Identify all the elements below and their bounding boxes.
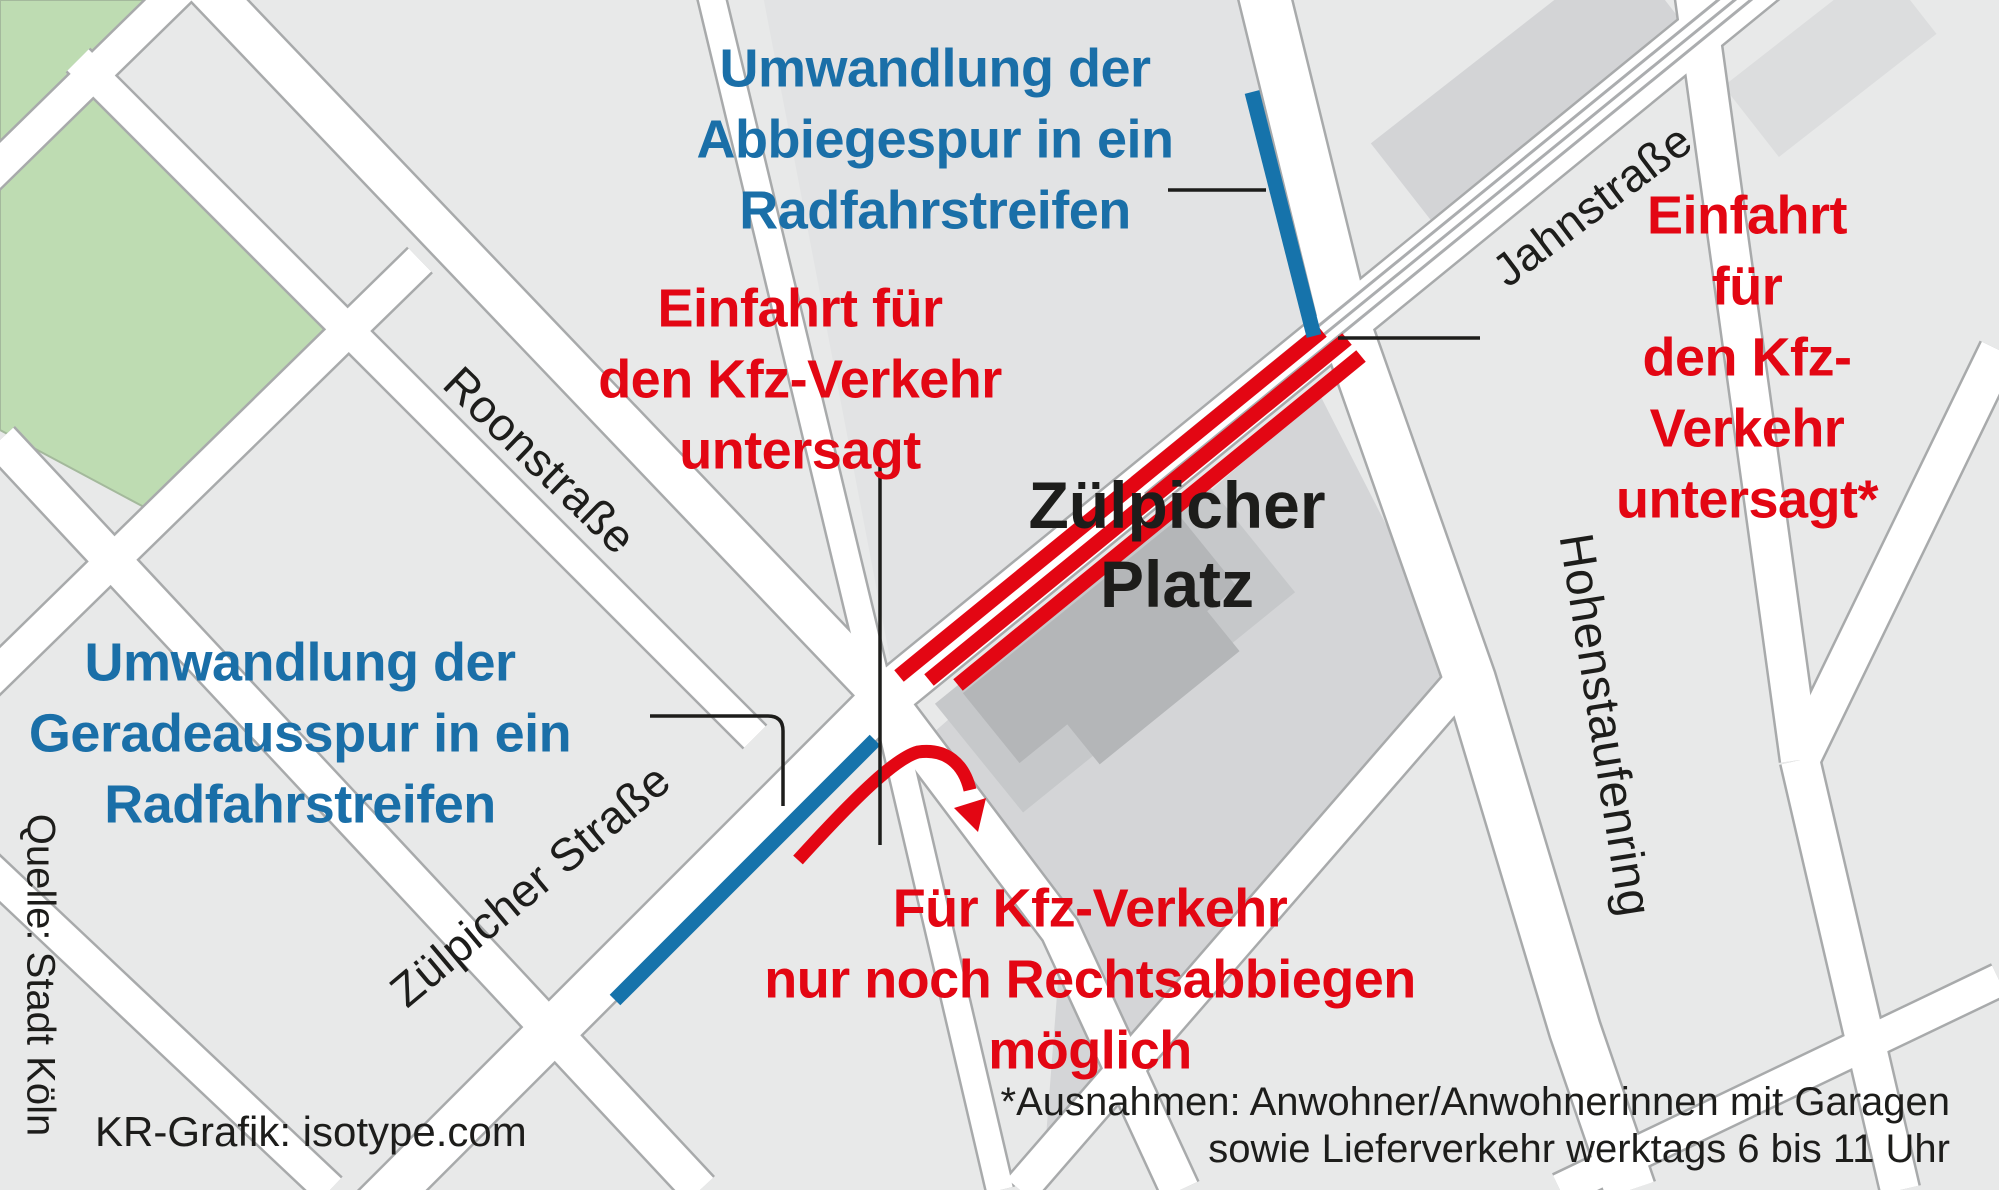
annotation-no-car-entry-right: Einfahrt für den Kfz-Verkehr untersagt* [1616, 181, 1878, 536]
annotation-straight-lane-to-bike-lane: Umwandlung der Geradeausspur in ein Radf… [29, 628, 571, 841]
annotation-turn-lane-to-bike-lane: Umwandlung der Abbiegespur in ein Radfah… [696, 34, 1173, 247]
annotation-no-car-entry-left: Einfahrt für den Kfz-Verkehr untersagt [598, 274, 1002, 487]
credit-graphic: KR-Grafik: isotype.com [95, 1108, 527, 1156]
traffic-map-infographic: Umwandlung der Abbiegespur in ein Radfah… [0, 0, 1999, 1190]
credit-source: Quelle: Stadt Köln [18, 814, 63, 1136]
footnote-exceptions: *Ausnahmen: Anwohner/Anwohnerinnen mit G… [1001, 1079, 1951, 1173]
place-label-zuelpicher-platz: Zülpicher Platz [1028, 466, 1325, 624]
annotation-right-turn-only: Für Kfz-Verkehr nur noch Rechtsabbiegen … [764, 874, 1416, 1087]
